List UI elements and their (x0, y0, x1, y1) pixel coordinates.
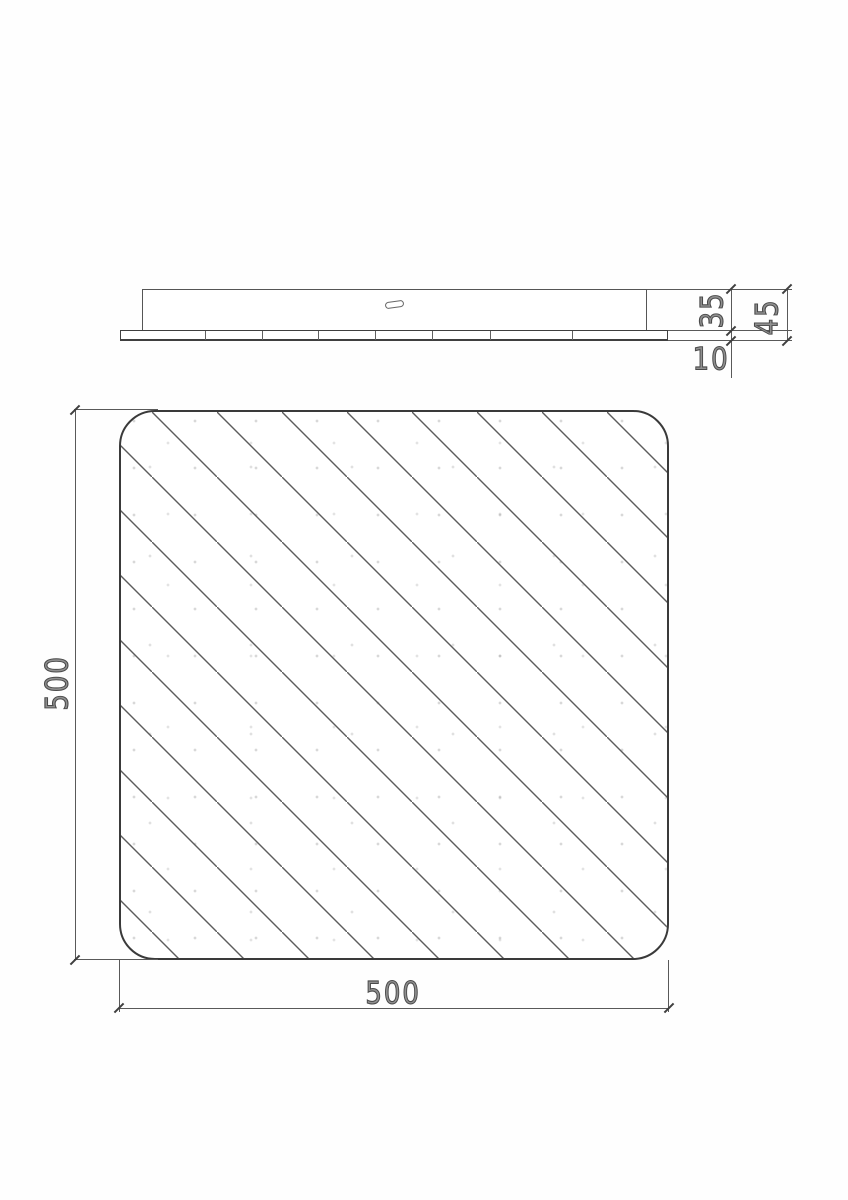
dim-label-body-height: 35 (698, 292, 729, 329)
plate-segment-line (318, 331, 319, 340)
dim-label-plate-thickness: 10 (693, 345, 730, 376)
fixture-body-outline (142, 289, 647, 331)
hatch-pattern (121, 412, 667, 958)
dim-label-panel-height: 500 (43, 655, 74, 710)
drawing-sheet: 35 45 10 500 500 (0, 0, 848, 1200)
plate-segment-line (572, 331, 573, 340)
panel-outline (119, 410, 669, 960)
dimension-line-45 (787, 289, 788, 341)
plate-segment-line (375, 331, 376, 340)
plate-segment-line (205, 331, 206, 340)
diffuser-plate-outline (120, 330, 668, 341)
plate-segment-line (262, 331, 263, 340)
extension-line-top-left (74, 409, 158, 410)
extension-line-bottom-right-vertical (668, 960, 669, 1012)
dimension-line-35-10 (731, 289, 732, 378)
dim-label-panel-width: 500 (365, 979, 420, 1010)
plate-segment-line (432, 331, 433, 340)
dim-label-total-height: 45 (753, 299, 784, 336)
extension-line-body-top (647, 289, 792, 290)
extension-line-bottom-left (74, 959, 158, 960)
plate-segment-line (490, 331, 491, 340)
